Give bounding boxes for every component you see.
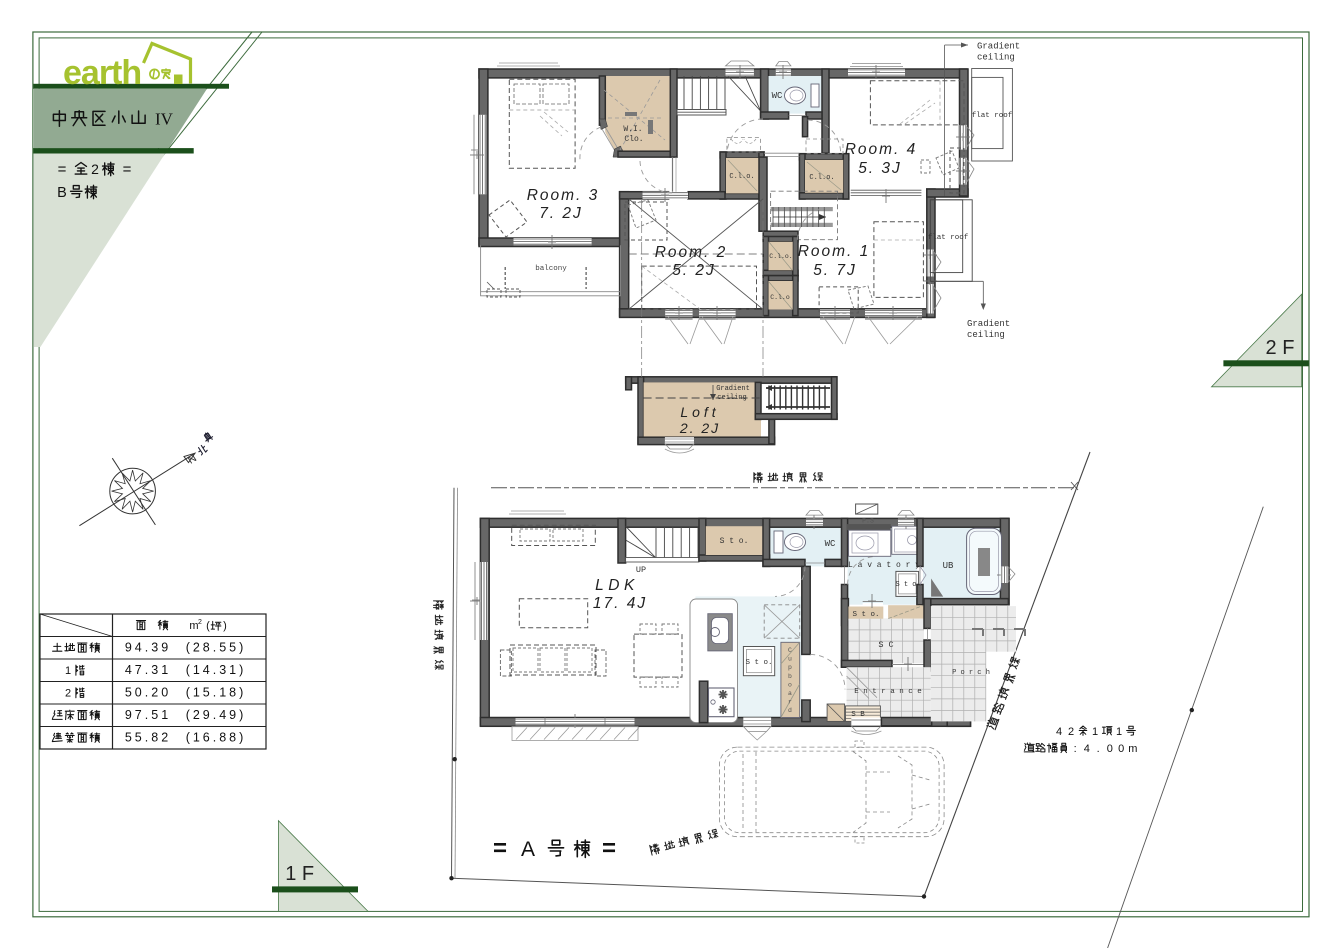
svg-text:5. 3J: 5. 3J (858, 160, 902, 177)
svg-text:WC: WC (772, 91, 783, 101)
svg-text::: : (1074, 743, 1077, 755)
svg-text:Room. 3: Room. 3 (527, 187, 600, 204)
svg-text:C: C (788, 647, 792, 654)
svg-text:flat roof: flat roof (928, 234, 969, 242)
svg-text:94.39: 94.39 (125, 641, 171, 655)
svg-text:(29.49): (29.49) (186, 708, 247, 722)
svg-text:p: p (788, 664, 792, 671)
svg-text:2: 2 (91, 161, 99, 177)
svg-text:UB: UB (943, 561, 954, 571)
svg-text:WC: WC (825, 539, 836, 549)
svg-text:Room. 2: Room. 2 (655, 244, 728, 261)
svg-text:IV: IV (155, 110, 174, 129)
svg-text:(14.31): (14.31) (186, 663, 247, 677)
svg-text:4: 4 (1084, 743, 1090, 755)
svg-text:B: B (57, 185, 67, 201)
svg-text:Clo.: Clo. (624, 135, 643, 144)
svg-text:C.l.o.: C.l.o. (809, 174, 834, 182)
svg-text:2: 2 (198, 619, 202, 626)
svg-text:ceiling: ceiling (977, 53, 1015, 63)
svg-text:(: ( (206, 620, 210, 632)
svg-text:47.31: 47.31 (125, 663, 171, 677)
svg-text:balcony: balcony (535, 265, 567, 273)
svg-text:S C: S C (878, 640, 893, 650)
svg-text:0: 0 (1118, 743, 1124, 755)
svg-text:E n t r a n c e: E n t r a n c e (854, 688, 922, 696)
svg-text:S t o: S t o (895, 581, 916, 589)
svg-text:m: m (1128, 743, 1137, 755)
svg-text:Gradient: Gradient (967, 319, 1010, 329)
svg-text:Gradient: Gradient (977, 42, 1020, 52)
svg-text:5. 7J: 5. 7J (813, 262, 857, 279)
svg-text:(28.55): (28.55) (186, 641, 247, 655)
svg-text:S t o.: S t o. (852, 611, 879, 619)
svg-text:P.S: P.S (862, 518, 874, 525)
svg-text:2: 2 (1068, 726, 1074, 738)
svg-text:=: = (58, 161, 67, 178)
svg-text:o: o (788, 681, 792, 688)
svg-text:earth: earth (63, 54, 141, 92)
svg-text:=: = (602, 835, 616, 862)
svg-text:ceiling: ceiling (717, 394, 746, 402)
svg-text:S t o.: S t o. (745, 659, 772, 667)
svg-text:=: = (493, 835, 507, 862)
svg-text:2: 2 (65, 688, 71, 700)
svg-text:0: 0 (1107, 743, 1113, 755)
svg-text:50.20: 50.20 (125, 686, 171, 700)
svg-text:.: . (1097, 743, 1100, 755)
svg-text:Room. 4: Room. 4 (845, 141, 918, 158)
svg-text:1 F: 1 F (285, 863, 314, 885)
svg-text:55.82: 55.82 (125, 731, 171, 745)
svg-text:LDK: LDK (595, 577, 639, 594)
svg-text:2. 2J: 2. 2J (679, 420, 720, 436)
svg-text:(15.18): (15.18) (186, 686, 247, 700)
svg-text:97.51: 97.51 (125, 708, 171, 722)
svg-text:Room. 1: Room. 1 (798, 243, 871, 260)
svg-text:ceiling: ceiling (967, 330, 1005, 340)
svg-text:UP: UP (636, 565, 646, 575)
svg-text:=: = (123, 161, 132, 178)
svg-text:d: d (788, 707, 792, 714)
svg-text:A: A (521, 838, 535, 861)
svg-text:C.l.o.: C.l.o. (769, 253, 792, 260)
svg-text:): ) (223, 620, 227, 632)
svg-text:7. 2J: 7. 2J (539, 205, 583, 222)
svg-text:4: 4 (1056, 726, 1062, 738)
svg-text:C.l.o: C.l.o (770, 294, 790, 301)
svg-text:C.l.o.: C.l.o. (729, 173, 754, 181)
svg-text:17. 4J: 17. 4J (593, 595, 647, 612)
svg-text:P o r c h: P o r c h (952, 669, 990, 677)
svg-text:flat roof: flat roof (972, 112, 1013, 120)
svg-text:(16.88): (16.88) (186, 731, 247, 745)
svg-text:b: b (788, 673, 792, 680)
svg-text:u: u (788, 656, 792, 663)
svg-text:a: a (788, 690, 792, 697)
svg-text:W.I.: W.I. (623, 125, 642, 134)
svg-text:5. 2J: 5. 2J (672, 262, 716, 279)
svg-text:L a v a t o r y: L a v a t o r y (848, 561, 920, 570)
svg-text:Gradient: Gradient (716, 385, 750, 393)
svg-text:1: 1 (65, 665, 71, 677)
svg-text:S t o.: S t o. (720, 537, 749, 546)
svg-text:1: 1 (1092, 726, 1098, 738)
svg-text:r: r (788, 699, 792, 706)
svg-text:2 F: 2 F (1266, 337, 1295, 359)
svg-text:Loft: Loft (680, 404, 719, 420)
svg-text:1: 1 (1116, 726, 1122, 738)
